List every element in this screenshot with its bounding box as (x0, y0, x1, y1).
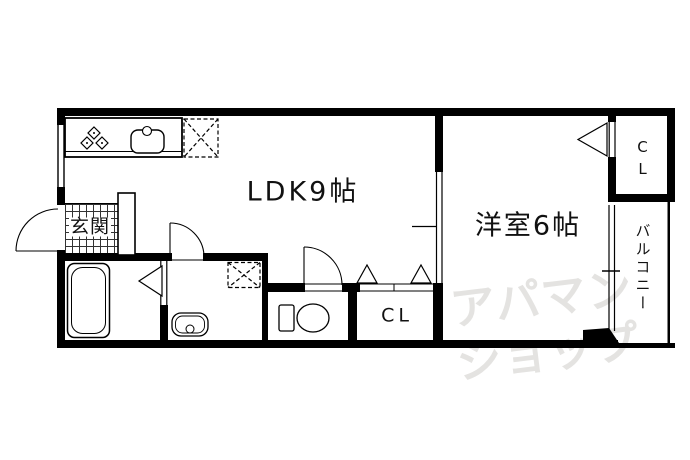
entrance-door (16, 209, 58, 251)
western-room-label: 洋室6帖 (475, 213, 581, 240)
balcony-label: バルコニー (635, 223, 650, 313)
kitchen-counter (65, 118, 182, 157)
toilet-icon (279, 304, 329, 332)
closet-folding-door-upper (578, 122, 615, 157)
balcony-window (602, 205, 620, 331)
sliding-door (412, 172, 442, 283)
kitchen-window (58, 125, 64, 187)
washbasin-icon (172, 313, 208, 336)
bathroom-folding-door (139, 261, 167, 305)
closet-upper-label: CL (635, 138, 650, 182)
floor-plan: アパマン ショップ (0, 0, 690, 460)
washing-machine-space-icon (228, 263, 260, 288)
balcony-partition (583, 328, 621, 346)
closet-lower-label: CL (381, 307, 413, 326)
ldk-room-label: LDK9帖 (247, 179, 360, 206)
refrigerator-space-icon (184, 119, 218, 157)
closet-folding-door-lower (357, 265, 433, 291)
bathtub-icon (68, 264, 110, 338)
entrance-label: 玄関 (69, 218, 111, 237)
toilet-door (304, 247, 342, 291)
entrance-partition (118, 193, 135, 255)
kitchen-sink-icon (131, 127, 164, 154)
washroom-door (170, 223, 204, 260)
